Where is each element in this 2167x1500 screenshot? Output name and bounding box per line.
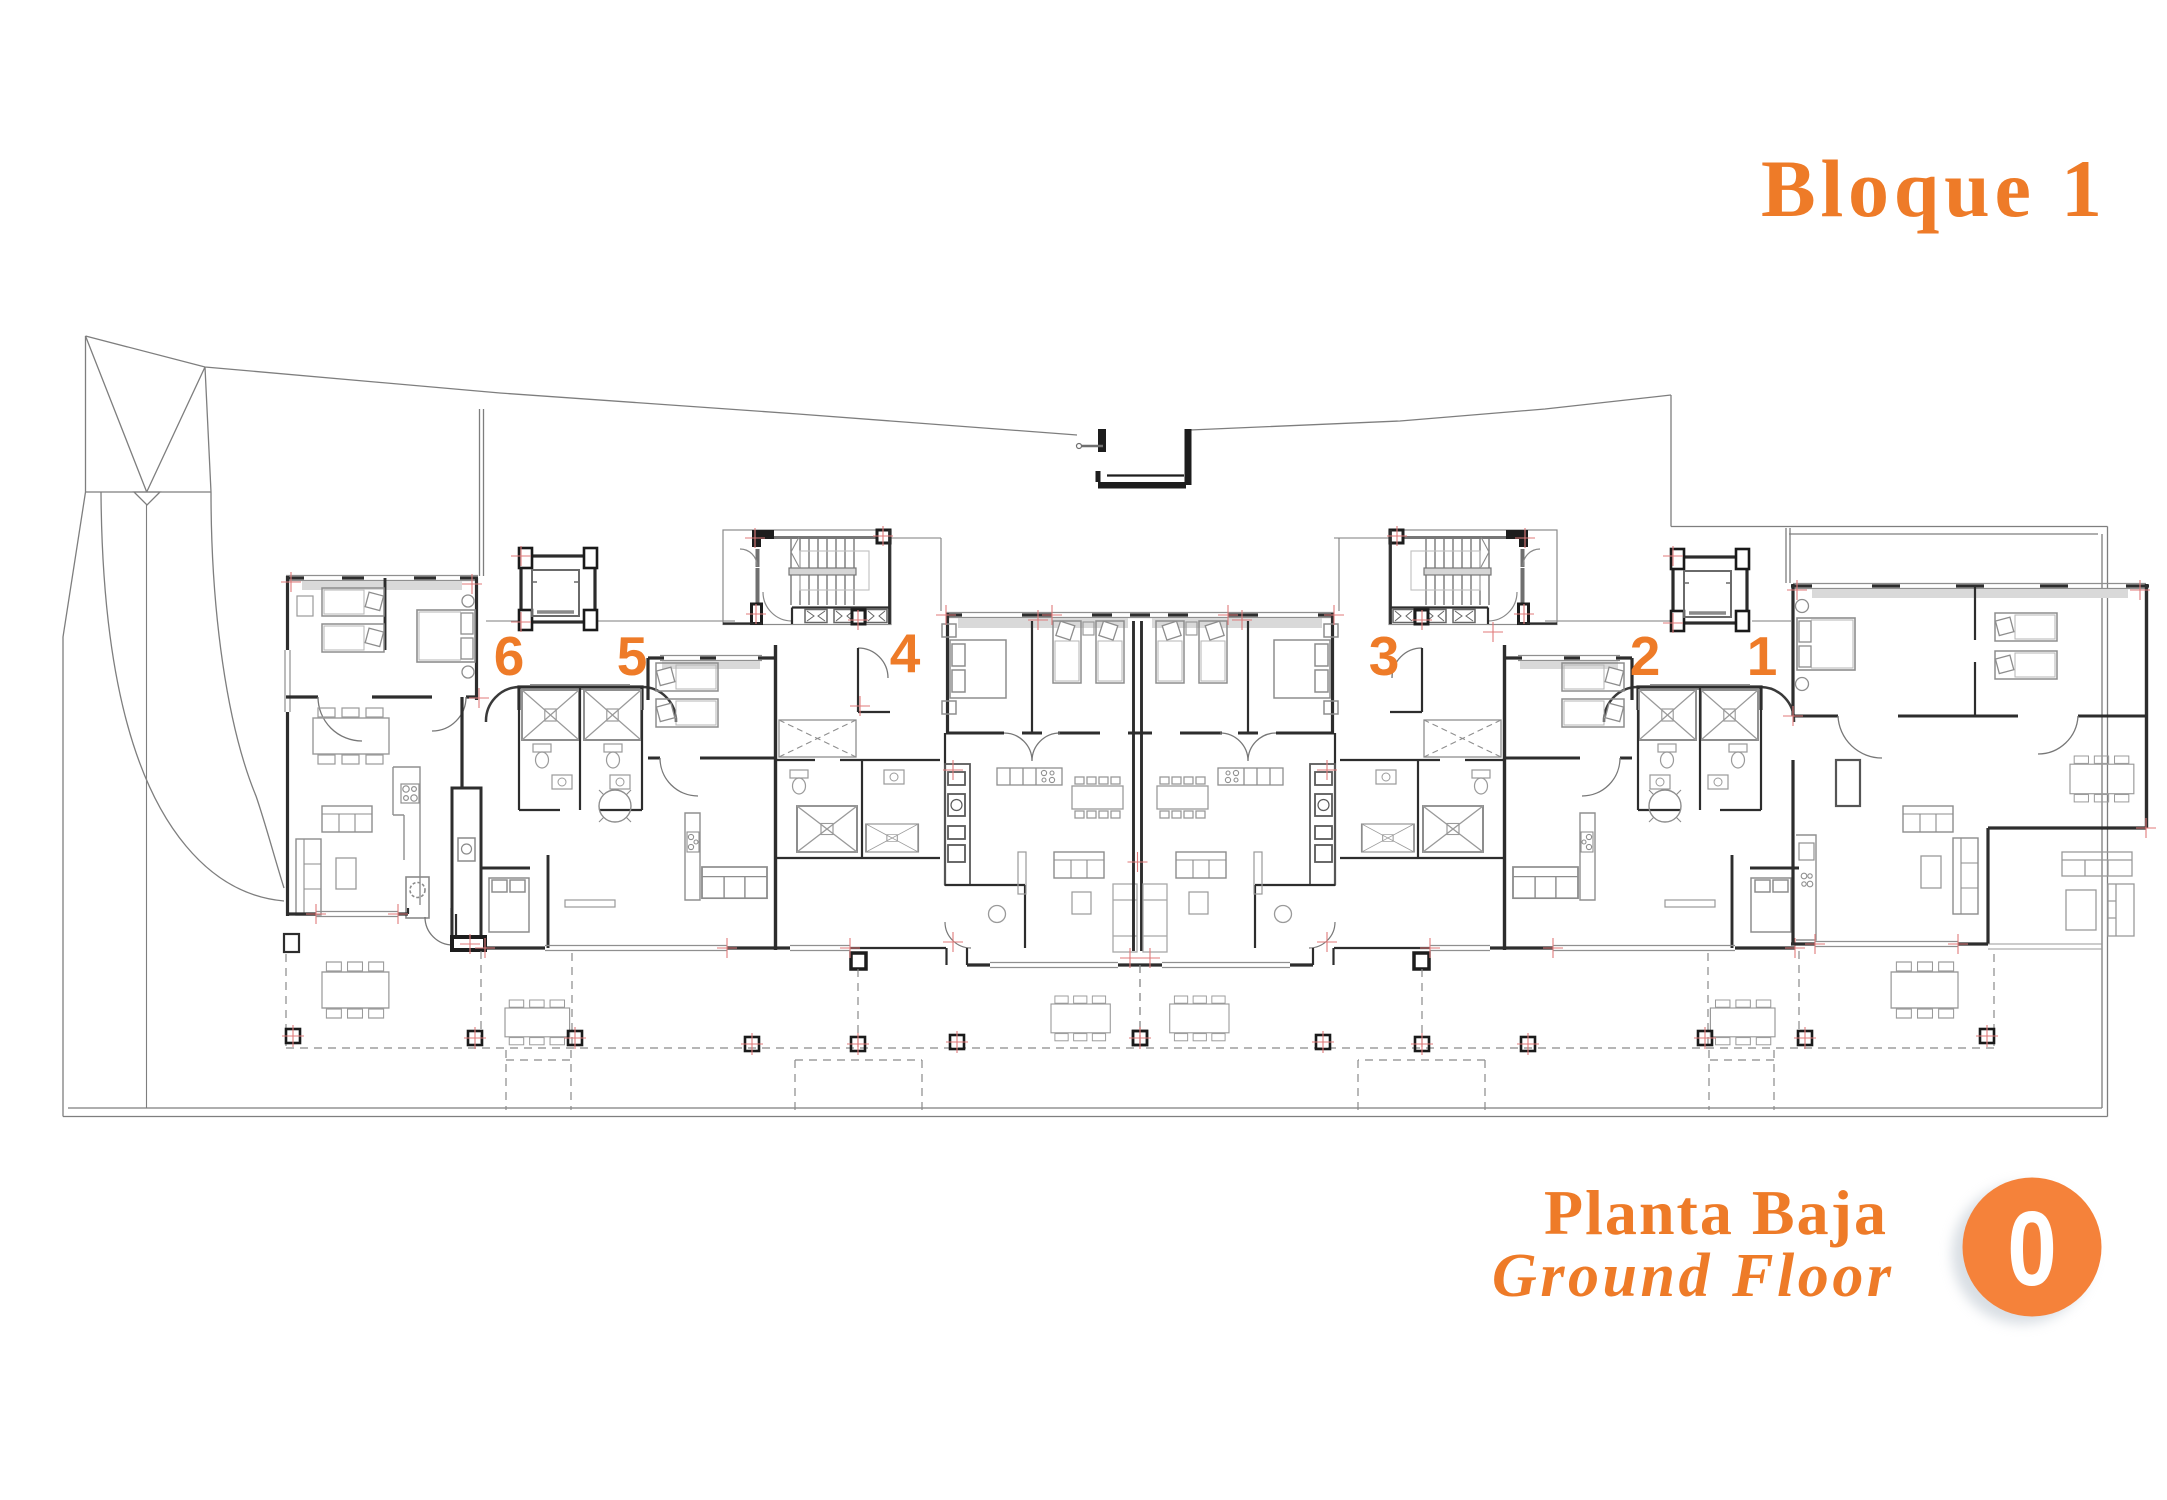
svg-text:3: 3 <box>1369 625 1400 687</box>
svg-text:Planta Baja: Planta Baja <box>1544 1177 1892 1248</box>
svg-text:5: 5 <box>617 625 648 687</box>
svg-text:1: 1 <box>1747 625 1778 687</box>
svg-text:2: 2 <box>1630 625 1661 687</box>
svg-text:4: 4 <box>890 622 921 684</box>
svg-text:Ground Floor: Ground Floor <box>1492 1242 1896 1310</box>
svg-text:Bloque 1: Bloque 1 <box>1761 143 2108 234</box>
svg-text:6: 6 <box>494 625 525 687</box>
svg-text:0: 0 <box>2007 1189 2057 1308</box>
